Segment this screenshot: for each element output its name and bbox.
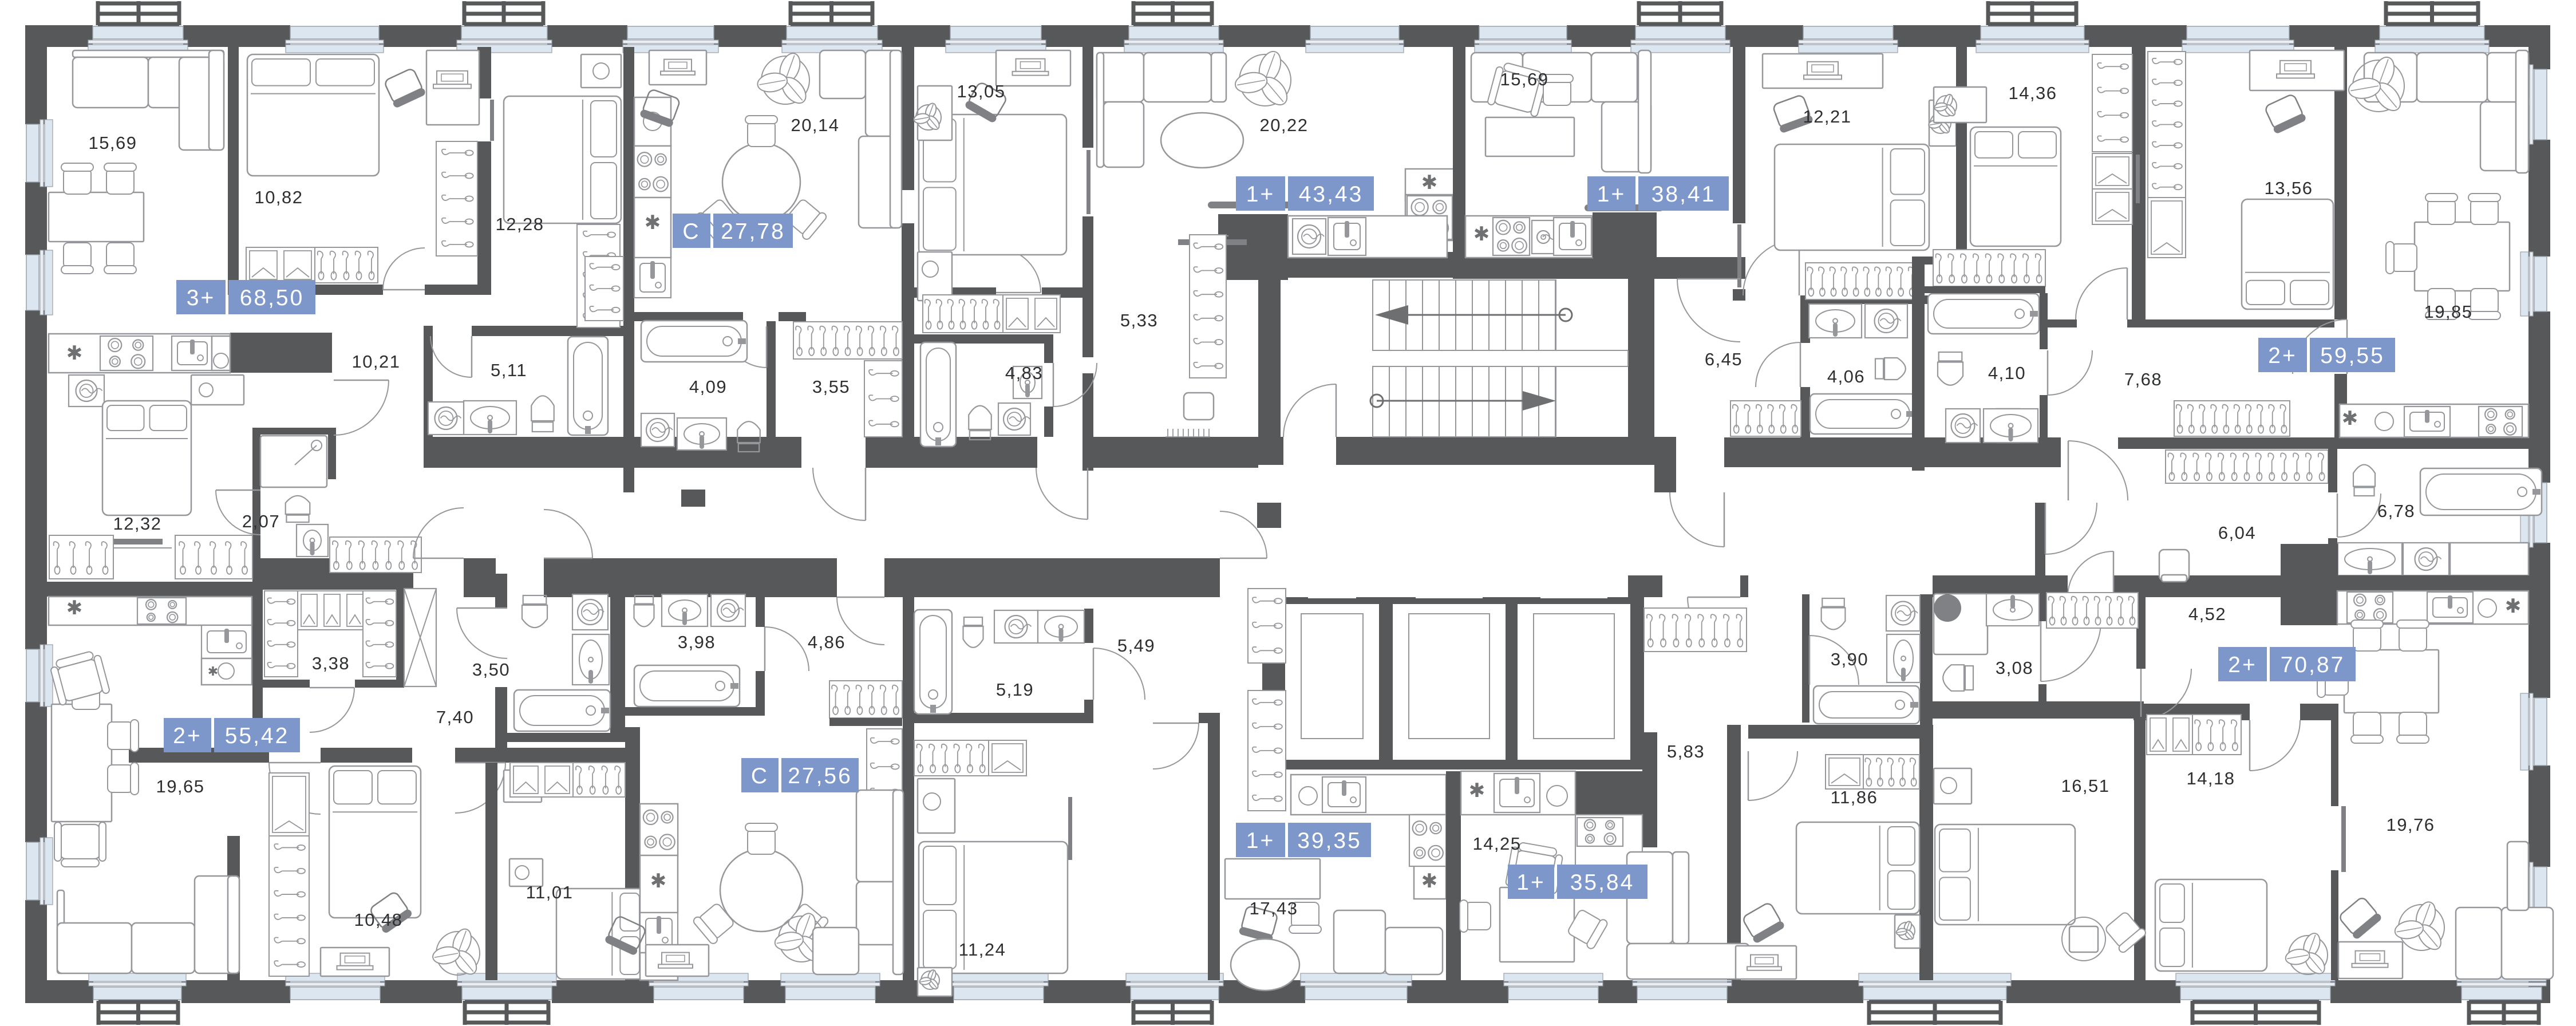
svg-text:12,28: 12,28	[495, 214, 544, 234]
svg-text:14,25: 14,25	[1472, 834, 1521, 854]
svg-text:39,35: 39,35	[1297, 828, 1362, 853]
svg-text:4,83: 4,83	[1005, 363, 1043, 383]
svg-text:6,45: 6,45	[1705, 349, 1743, 369]
svg-text:10,21: 10,21	[351, 352, 400, 372]
svg-text:✱: ✱	[66, 342, 83, 364]
svg-text:3,38: 3,38	[312, 653, 350, 673]
svg-text:✱: ✱	[1473, 223, 1490, 245]
svg-text:С: С	[682, 219, 700, 244]
svg-text:55,42: 55,42	[225, 724, 290, 748]
svg-text:3,50: 3,50	[472, 660, 510, 680]
svg-text:2+: 2+	[173, 724, 202, 748]
svg-text:7,68: 7,68	[2124, 369, 2162, 389]
svg-text:17,43: 17,43	[1249, 898, 1298, 918]
svg-text:19,85: 19,85	[2424, 302, 2472, 322]
svg-text:10,48: 10,48	[354, 910, 402, 930]
svg-text:✱: ✱	[208, 664, 218, 678]
svg-text:14,18: 14,18	[2186, 768, 2235, 788]
svg-text:27,78: 27,78	[721, 219, 785, 244]
svg-text:✱: ✱	[2505, 595, 2522, 617]
svg-text:4,10: 4,10	[1988, 363, 2026, 383]
svg-text:5,33: 5,33	[1120, 310, 1158, 330]
svg-text:20,22: 20,22	[1259, 115, 1308, 135]
svg-text:12,32: 12,32	[113, 514, 161, 534]
svg-text:13,56: 13,56	[2264, 178, 2313, 198]
svg-text:59,55: 59,55	[2320, 344, 2385, 368]
svg-text:15,69: 15,69	[88, 133, 137, 153]
svg-text:2+: 2+	[2228, 653, 2257, 677]
svg-text:3,08: 3,08	[1996, 658, 2033, 678]
svg-text:1+: 1+	[1246, 182, 1275, 207]
svg-text:12,21: 12,21	[1803, 106, 1851, 127]
svg-text:6,04: 6,04	[2218, 523, 2256, 543]
svg-text:✱: ✱	[1469, 780, 1485, 802]
svg-text:4,52: 4,52	[2188, 604, 2226, 624]
svg-text:3,90: 3,90	[1831, 649, 1868, 669]
svg-text:1+: 1+	[1516, 870, 1545, 895]
svg-text:3,98: 3,98	[678, 632, 716, 652]
svg-text:19,76: 19,76	[2386, 815, 2435, 835]
svg-text:10,82: 10,82	[254, 187, 303, 207]
svg-text:1+: 1+	[1597, 182, 1626, 207]
svg-text:14,36: 14,36	[2008, 83, 2057, 103]
svg-text:3+: 3+	[187, 286, 215, 310]
svg-text:4,06: 4,06	[1827, 366, 1865, 386]
svg-text:7,40: 7,40	[436, 707, 474, 727]
svg-text:19,65: 19,65	[156, 776, 204, 796]
svg-text:15,69: 15,69	[1500, 69, 1548, 89]
svg-text:5,19: 5,19	[996, 680, 1034, 700]
svg-text:13,05: 13,05	[957, 81, 1005, 101]
svg-text:✱: ✱	[645, 212, 661, 234]
svg-text:✱: ✱	[1421, 172, 1438, 194]
svg-text:2+: 2+	[2268, 344, 2297, 368]
svg-text:11,24: 11,24	[959, 940, 1006, 960]
svg-text:35,84: 35,84	[1570, 870, 1635, 895]
svg-text:5,83: 5,83	[1667, 741, 1705, 761]
svg-text:68,50: 68,50	[240, 286, 305, 310]
svg-text:20,14: 20,14	[791, 115, 839, 135]
svg-text:✱: ✱	[66, 597, 83, 619]
svg-text:4,09: 4,09	[689, 377, 727, 397]
svg-text:✱: ✱	[650, 870, 667, 892]
svg-text:43,43: 43,43	[1299, 182, 1364, 207]
svg-text:38,41: 38,41	[1652, 182, 1716, 207]
svg-text:16,51: 16,51	[2061, 776, 2109, 796]
svg-text:6,78: 6,78	[2377, 501, 2415, 521]
svg-text:✱: ✱	[1421, 870, 1438, 892]
svg-text:4,86: 4,86	[808, 632, 846, 652]
svg-text:✱: ✱	[2342, 408, 2358, 429]
svg-text:С: С	[751, 764, 769, 788]
svg-text:11,86: 11,86	[1831, 787, 1878, 807]
svg-text:3,55: 3,55	[812, 377, 850, 397]
svg-text:2,07: 2,07	[242, 511, 280, 531]
svg-text:27,56: 27,56	[788, 764, 852, 788]
svg-text:5,49: 5,49	[1117, 636, 1155, 656]
svg-text:1+: 1+	[1246, 828, 1275, 853]
svg-text:11,01: 11,01	[526, 882, 574, 902]
svg-text:5,11: 5,11	[491, 360, 527, 380]
svg-text:70,87: 70,87	[2281, 653, 2345, 677]
